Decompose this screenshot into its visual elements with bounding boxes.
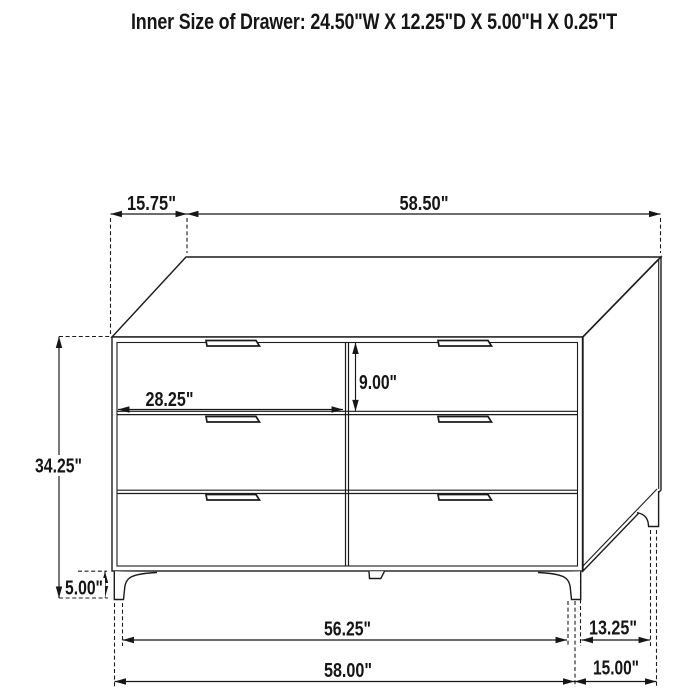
label-drawer-width: 28.25": [146, 389, 194, 411]
label-front-leg-span: 56.25": [324, 619, 371, 641]
drawer-handle-middle-right: [438, 417, 492, 423]
cabinet-top-surface: [112, 257, 661, 337]
cabinet-front-face: [112, 337, 583, 571]
drawer-handle-top-left: [206, 341, 260, 347]
label-side-leg-span: 13.25": [589, 618, 637, 640]
dimension-diagram: Inner Size of Drawer: 24.50"W X 12.25"D …: [0, 0, 700, 700]
label-overall-width: 58.00": [324, 660, 372, 682]
page-title: Inner Size of Drawer: 24.50"W X 12.25"D …: [131, 9, 617, 34]
drawer-handle-top-right: [438, 341, 492, 347]
label-cabinet-height: 34.25": [35, 456, 82, 478]
drawer-handle-bottom-right: [438, 495, 492, 501]
label-leg-height: 5.00": [65, 578, 103, 600]
label-top-width: 58.50": [400, 193, 449, 215]
center-support-leg: [369, 571, 385, 578]
front-right-leg: [538, 571, 581, 599]
label-drawer-height: 9.00": [359, 372, 397, 394]
label-top-depth: 15.75": [127, 193, 176, 215]
cabinet-outline: [112, 257, 661, 571]
drawer-handle-middle-left: [206, 417, 260, 423]
front-left-leg: [114, 571, 157, 599]
dresser-drawing: Inner Size of Drawer: 24.50"W X 12.25"D …: [0, 0, 700, 700]
drawer-handle-bottom-left: [206, 495, 260, 501]
label-overall-depth: 15.00": [593, 658, 639, 680]
